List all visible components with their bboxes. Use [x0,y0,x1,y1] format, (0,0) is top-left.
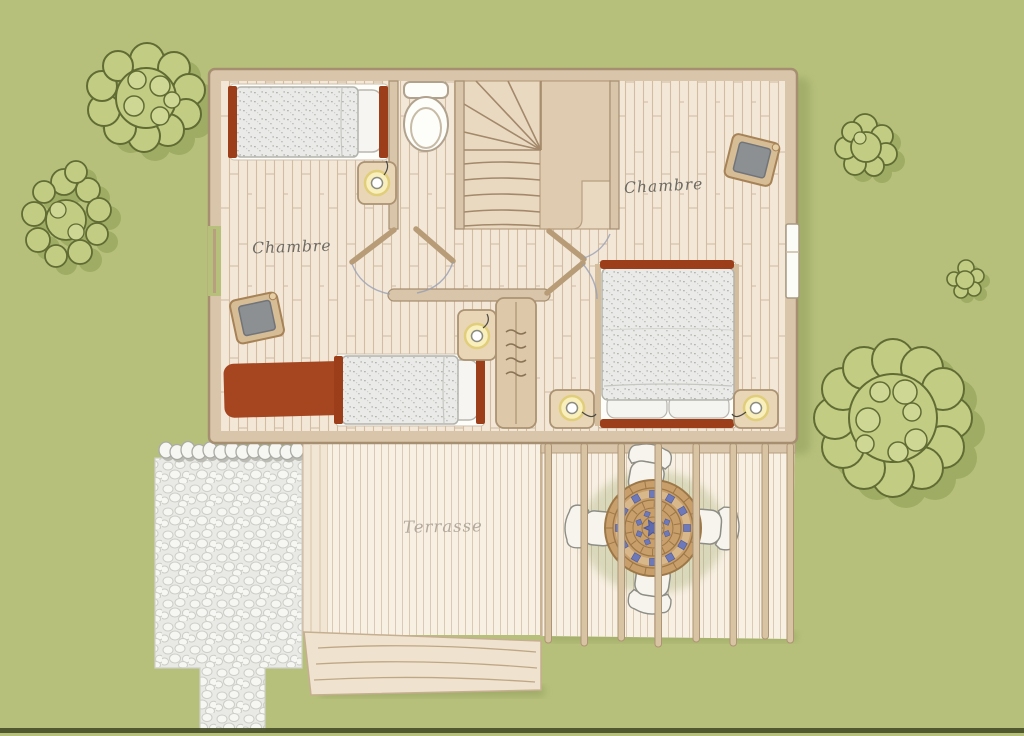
terrace-deck: Terrasse [303,443,544,696]
bed-rail [379,86,388,158]
nightstand-hall [458,310,496,360]
lamp [365,171,389,195]
duvet [602,268,734,400]
window-right-wall [786,224,799,298]
single-bed-top-left [228,84,388,160]
staircase [464,81,610,229]
bed-rail [228,86,237,158]
nightstand-bed-left [550,390,596,428]
house-upper-floor: Chambre Chambre [208,69,799,443]
bed-rail [334,356,343,424]
bed-rail [600,260,734,269]
wardrobe-cabinet [496,298,536,428]
bed-rail [476,356,485,424]
ground-edge-line [0,728,1024,733]
duvet [236,87,358,157]
nightstand-top-left [358,161,396,204]
window-left-wall [208,226,221,296]
wall-bedroom-right [610,81,619,229]
wall-toilet-nook [389,81,398,229]
nightstand-bed-right [732,390,778,428]
terrace-label: Terrasse [403,516,483,536]
lamp [465,324,489,348]
duvet [342,356,458,424]
bed-rail [600,419,734,428]
lamp [560,396,584,420]
floor-plan-canvas: Terrasse [0,0,1024,736]
lamp [744,396,768,420]
terrace-pergola [541,441,796,647]
floor-plan-illustration: Terrasse [0,0,1024,736]
single-bed-bottom [334,354,485,426]
wall-stair-left [455,81,464,229]
double-bed [595,260,739,428]
roof-window-left [229,291,285,344]
toilet [404,82,448,151]
bedroom-left-label: Chambre [252,237,332,258]
